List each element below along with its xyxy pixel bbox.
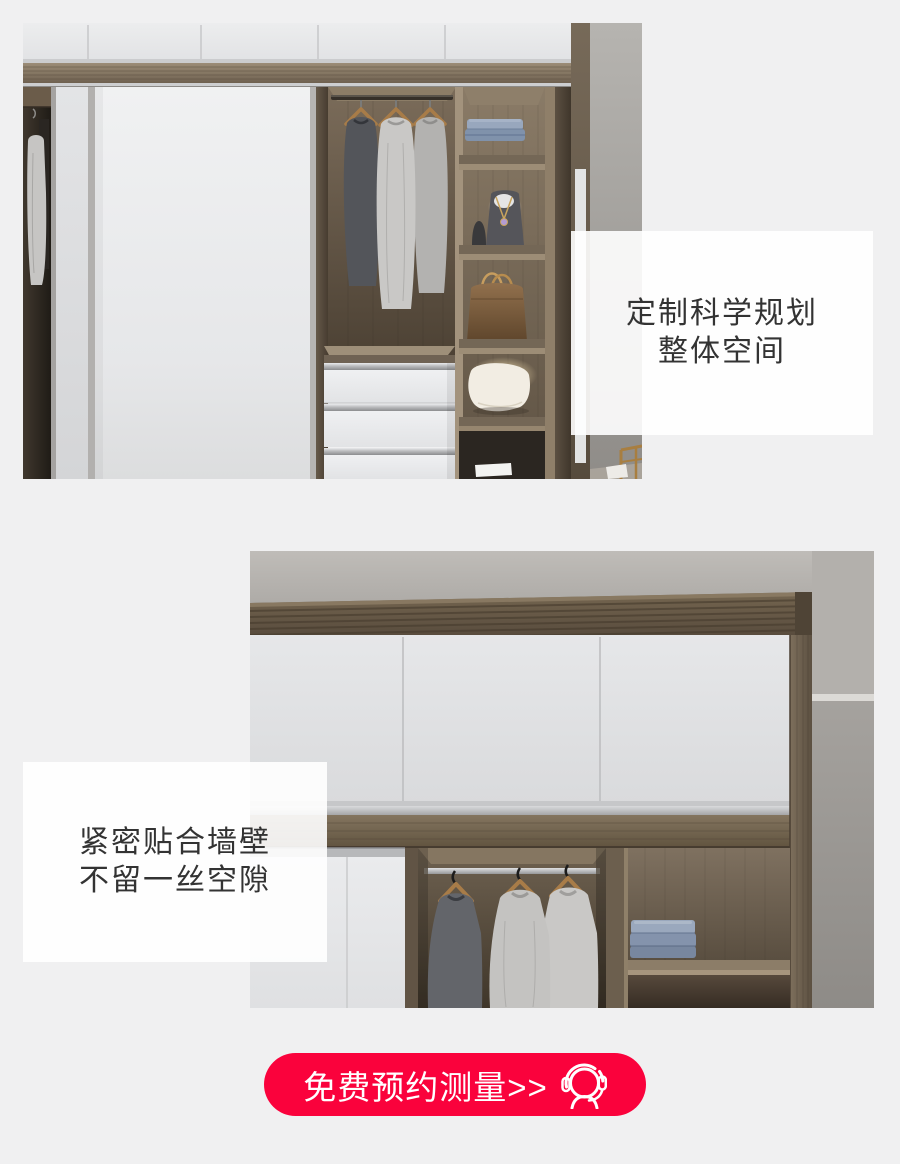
folded-towels-bottom <box>630 920 696 958</box>
hanging-section <box>328 87 456 368</box>
caption-bottom-line2: 不留一丝空隙 <box>79 862 271 900</box>
wardrobe-photo-top <box>23 23 642 479</box>
caption-top-line2: 整体空间 <box>658 333 786 371</box>
customer-service-headset-icon <box>561 1061 607 1109</box>
upper-cabinet-doors <box>23 23 571 63</box>
hanging-shirt-dark <box>344 100 379 286</box>
wardrobe-top-cabinets-image <box>250 551 874 1008</box>
left-interior-sliver <box>23 87 51 479</box>
upper-cabinet-doors-bottom <box>250 635 795 848</box>
hanging-shirt-light <box>377 100 416 309</box>
free-measure-cta-button[interactable]: 免费预约测量>> <box>264 1053 646 1116</box>
wardrobe-photo-bottom <box>250 551 874 1008</box>
wardrobe-interior-image <box>23 23 642 479</box>
caption-box-bottom: 紧密贴合墙壁 不留一丝空隙 <box>23 762 327 962</box>
hanging-shirt-gray <box>414 100 448 293</box>
hanging-section-bottom <box>418 848 606 1008</box>
cta-label: 免费预约测量>> <box>303 1061 548 1109</box>
caption-box-top: 定制科学规划 整体空间 <box>571 231 873 435</box>
shelf-column <box>455 87 571 479</box>
sliding-doors <box>51 87 316 479</box>
shelf-column-bottom <box>606 848 790 1008</box>
product-detail-page: 定制科学规划 整体空间 <box>0 0 900 1164</box>
drawer-unit <box>324 346 455 479</box>
folded-towels <box>465 119 525 141</box>
hanging-sweater-middle <box>489 890 550 1008</box>
right-frame-column <box>790 635 812 1008</box>
caption-bottom-line1: 紧密贴合墙壁 <box>79 824 271 862</box>
wood-top-rail <box>23 63 571 87</box>
caption-top-line1: 定制科学规划 <box>626 295 818 333</box>
